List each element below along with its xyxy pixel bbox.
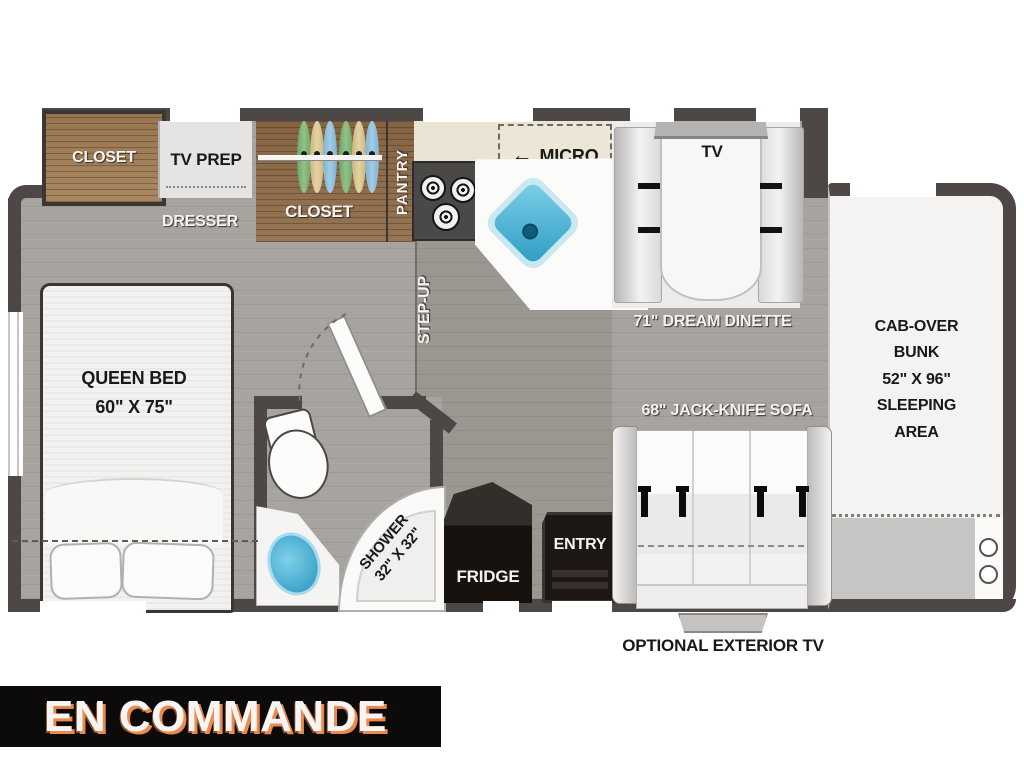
- burner-icon: [450, 177, 476, 203]
- sink-drain: [519, 220, 542, 243]
- bedroom-closet: CLOSET: [42, 110, 166, 206]
- closet-rod: [258, 155, 382, 160]
- bedroom-closet-label: CLOSET: [72, 149, 136, 167]
- seat-mark-icon: [638, 227, 660, 233]
- fridge: FRIDGE: [444, 482, 532, 603]
- bunk-label-line3: 52" X 96": [882, 367, 951, 393]
- seat-mark-icon: [638, 183, 660, 189]
- sofa-body: [636, 430, 808, 590]
- window-gap: [850, 180, 936, 197]
- cab-over-bunk-section: CAB-OVER BUNK 52" X 96" SLEEPING AREA: [828, 183, 1016, 612]
- entry-door-gap: [552, 601, 612, 614]
- bedroom-window: [4, 312, 23, 476]
- bunk-label-line4: SLEEPING: [877, 393, 956, 419]
- pillow: [49, 542, 123, 600]
- window-gap: [483, 601, 519, 614]
- window-gap: [630, 105, 674, 122]
- entry-step: [552, 582, 608, 589]
- tv-prep-label: TV PREP: [170, 150, 241, 170]
- cab-area: [830, 518, 975, 599]
- step-up-label: STEP-UP: [416, 258, 444, 362]
- dinette-bench: [758, 127, 804, 303]
- window-gap: [423, 105, 533, 122]
- wardrobe-closet: CLOSET: [256, 121, 388, 242]
- exterior-tv-bracket: [678, 613, 768, 633]
- sofa-seam: [749, 431, 751, 589]
- tv-bracket: [654, 121, 768, 139]
- sofa-armrest: [612, 426, 638, 604]
- seat-mark-icon: [760, 183, 782, 189]
- cupholder-icon: [979, 538, 998, 557]
- seat-mark-icon: [760, 227, 782, 233]
- sofa-skirt: [636, 584, 808, 609]
- dresser-label: DRESSER: [140, 213, 260, 231]
- queen-bed-label: QUEEN BED 60" X 75": [43, 364, 225, 422]
- seatbelt-icon: [757, 489, 764, 517]
- sofa-armrest: [806, 426, 832, 606]
- seatbelt-icon: [641, 489, 648, 517]
- seatbelt-icon: [679, 489, 686, 517]
- bunk-label-line2: BUNK: [894, 340, 939, 366]
- exterior-tv-label: OPTIONAL EXTERIOR TV: [598, 636, 848, 656]
- queen-bed-label-line1: QUEEN BED: [43, 364, 225, 393]
- burner-icon: [432, 203, 460, 231]
- bunk-label-line1: CAB-OVER: [875, 314, 959, 340]
- stove-cooktop: [412, 161, 482, 241]
- dinette-bench: [614, 127, 662, 303]
- right-wall-segment: [802, 108, 828, 198]
- bunk-label-line5: AREA: [894, 420, 939, 446]
- window-gap: [40, 601, 146, 614]
- bunk-edge-line: [832, 514, 1000, 517]
- entry-door: ENTRY: [542, 512, 618, 603]
- wardrobe-closet-label: CLOSET: [256, 202, 382, 222]
- sofa-seam: [692, 431, 694, 589]
- pillow: [121, 541, 215, 600]
- seatbelt-icon: [799, 489, 806, 517]
- dinette-label: 71" DREAM DINETTE: [615, 313, 810, 331]
- bed-foot-band: [45, 478, 223, 544]
- burner-icon: [420, 175, 446, 201]
- cab-side-strip: [975, 518, 1003, 599]
- tv-prep-dotted-edge: [166, 186, 246, 188]
- entry-label: ENTRY: [542, 536, 618, 554]
- fridge-label: FRIDGE: [456, 567, 519, 587]
- entry-step: [552, 570, 608, 577]
- pantry-label: PANTRY: [394, 149, 411, 215]
- status-banner: EN COMMANDE: [0, 686, 441, 747]
- tv-prep-cabinet: TV PREP: [158, 121, 252, 198]
- window-gap: [756, 105, 800, 122]
- door-swing-arc: [280, 298, 410, 418]
- queen-bed-label-line2: 60" X 75": [43, 393, 225, 422]
- sofa-fold-line: [638, 545, 804, 547]
- rv-floorplan-page: CLOSET TV PREP DRESSER CLOSET PANTRY ← M…: [0, 0, 1024, 768]
- sofa-label: 68" JACK-KNIFE SOFA: [618, 402, 836, 420]
- window-gap: [170, 105, 240, 122]
- tv-label: TV: [694, 142, 730, 162]
- exterior-cutout: [0, 96, 42, 198]
- status-banner-text: EN COMMANDE: [44, 692, 387, 742]
- cab-over-bunk-label: CAB-OVER BUNK 52" X 96" SLEEPING AREA: [830, 314, 1003, 446]
- cupholder-icon: [979, 565, 998, 584]
